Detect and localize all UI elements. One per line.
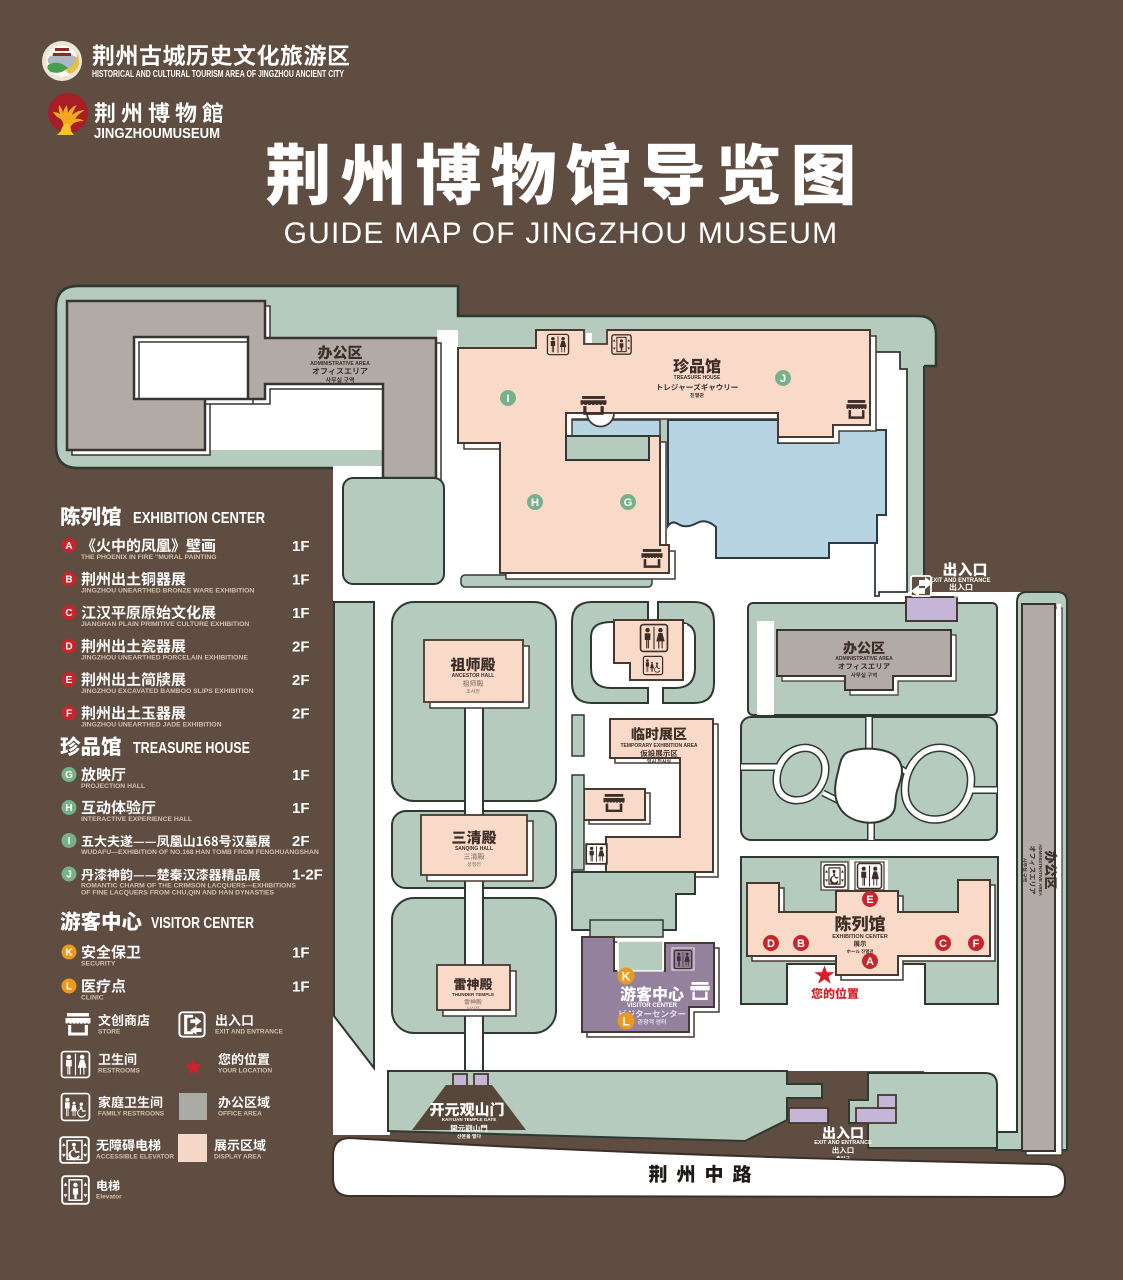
- svg-text:F: F: [973, 938, 980, 950]
- svg-text:H: H: [65, 803, 72, 814]
- svg-text:C: C: [65, 608, 72, 619]
- svg-text:K: K: [622, 969, 631, 983]
- svg-text:ADMINISTRATIVE AREA: ADMINISTRATIVE AREA: [310, 361, 370, 367]
- svg-text:I: I: [68, 836, 71, 847]
- svg-text:1F: 1F: [292, 979, 310, 996]
- svg-text:2F: 2F: [292, 672, 310, 689]
- svg-text:JINGZHOU UNEARTHED BRONZE WARE: JINGZHOU UNEARTHED BRONZE WARE EXHIBITIO…: [81, 588, 254, 595]
- svg-text:THE PHOENIX IN FIRE "MURAL PAI: THE PHOENIX IN FIRE "MURAL PAINTING: [81, 554, 217, 561]
- svg-text:JINGZHOU EXCAVATED BAMBOO SLIP: JINGZHOU EXCAVATED BAMBOO SLIPS EXHIBITI…: [81, 688, 254, 695]
- svg-text:EXHIBITION CENTER: EXHIBITION CENTER: [832, 934, 888, 940]
- svg-text:JINGZHOUMUSEUM: JINGZHOUMUSEUM: [94, 126, 220, 142]
- svg-text:RESTROOMS: RESTROOMS: [98, 1068, 141, 1075]
- svg-text:DISPLAY AREA: DISPLAY AREA: [214, 1154, 262, 1161]
- svg-text:ADMINISTRATIVE AREA: ADMINISTRATIVE AREA: [835, 656, 893, 662]
- svg-text:OF FINE LACQUERS FROM CHU,QIN: OF FINE LACQUERS FROM CHU,QIN AND HAN DY…: [81, 890, 275, 897]
- svg-text:1F: 1F: [292, 800, 310, 817]
- svg-text:G: G: [65, 770, 73, 781]
- svg-text:EXHIBITION CENTER: EXHIBITION CENTER: [133, 510, 265, 527]
- svg-text:SANQING HALL: SANQING HALL: [455, 846, 493, 852]
- svg-text:E: E: [66, 675, 73, 686]
- svg-text:D: D: [65, 642, 72, 653]
- svg-text:FAMILY RESTROONS: FAMILY RESTROONS: [98, 1111, 165, 1118]
- svg-text:PROJECTION HALL: PROJECTION HALL: [81, 783, 145, 790]
- svg-text:J: J: [66, 870, 72, 881]
- svg-text:ADMINISTRATIVE AREA: ADMINISTRATIVE AREA: [1038, 844, 1043, 897]
- svg-text:2F: 2F: [292, 706, 310, 723]
- svg-text:C: C: [939, 938, 947, 950]
- svg-text:A: A: [866, 956, 874, 968]
- svg-text:Elevator: Elevator: [96, 1194, 122, 1201]
- svg-text:SECURITY: SECURITY: [81, 961, 116, 968]
- svg-text:G: G: [624, 497, 633, 509]
- svg-text:1F: 1F: [292, 767, 310, 784]
- svg-text:JINGZHOU UNEARTHED JADE EXHIBI: JINGZHOU UNEARTHED JADE EXHIBITION: [81, 722, 222, 729]
- svg-text:1-2F: 1-2F: [292, 867, 323, 884]
- svg-text:2F: 2F: [292, 639, 310, 656]
- svg-text:ACCESSIBLE ELEVATOR: ACCESSIBLE ELEVATOR: [96, 1154, 174, 1161]
- svg-text:EXIT AND ENTRANCE: EXIT AND ENTRANCE: [814, 1140, 872, 1146]
- svg-text:K: K: [65, 948, 73, 959]
- svg-text:KAIYUAN TEMPLE GATE: KAIYUAN TEMPLE GATE: [442, 1117, 497, 1122]
- svg-text:2F: 2F: [292, 833, 310, 850]
- svg-text:1F: 1F: [292, 538, 310, 555]
- svg-text:CLINIC: CLINIC: [81, 995, 104, 1002]
- svg-text:I: I: [506, 393, 509, 405]
- svg-text:JIANGHAN PLAIN PRIMITIVE CULTU: JIANGHAN PLAIN PRIMITIVE CULTURE EXHIBIT…: [81, 621, 249, 628]
- svg-text:HISTORICAL AND CULTURAL TOURIS: HISTORICAL AND CULTURAL TOURISM AREA OF …: [92, 69, 344, 80]
- svg-text:VISITOR CENTER: VISITOR CENTER: [151, 915, 254, 932]
- svg-text:L: L: [622, 1014, 629, 1028]
- svg-text:JINGZHOU UNEARTHED PORCELAIN E: JINGZHOU UNEARTHED PORCELAIN EXHIBITIONE: [81, 655, 248, 662]
- svg-text:ROMANTIC CHARM OF THE CRIMSON: ROMANTIC CHARM OF THE CRIMSON LACQUERS—E…: [81, 883, 296, 890]
- svg-text:F: F: [66, 709, 72, 720]
- svg-text:D: D: [767, 938, 775, 950]
- svg-text:L: L: [66, 982, 72, 993]
- svg-text:EXIT AND ENTRANCE: EXIT AND ENTRANCE: [930, 578, 991, 584]
- svg-text:B: B: [797, 938, 805, 950]
- svg-text:1F: 1F: [292, 572, 310, 589]
- svg-text:TEMPORARY EXHIBITION AREA: TEMPORARY EXHIBITION AREA: [620, 743, 697, 749]
- svg-text:1F: 1F: [292, 945, 310, 962]
- svg-text:THUNDER TEMPLE: THUNDER TEMPLE: [452, 992, 494, 997]
- svg-text:WUDAFU—EXHIBITION OF NO.168 HA: WUDAFU—EXHIBITION OF NO.168 HAN TOMB FRO…: [81, 849, 319, 856]
- svg-text:TREASURE HOUSE: TREASURE HOUSE: [674, 375, 721, 381]
- svg-text:GUIDE MAP OF JINGZHOU MUSEUM: GUIDE MAP OF JINGZHOU MUSEUM: [284, 217, 839, 250]
- svg-text:B: B: [65, 575, 72, 586]
- svg-text:INTERACTIVE EXPERIENCE HALL: INTERACTIVE EXPERIENCE HALL: [81, 816, 192, 823]
- svg-text:VISITOR CENTER: VISITOR CENTER: [627, 1003, 678, 1009]
- svg-text:J: J: [780, 373, 786, 385]
- svg-text:YOUR LOCATION: YOUR LOCATION: [218, 1068, 272, 1075]
- svg-text:STORE: STORE: [98, 1029, 121, 1036]
- svg-text:TREASURE HOUSE: TREASURE HOUSE: [133, 740, 250, 757]
- svg-text:ANCESTOR HALL: ANCESTOR HALL: [452, 673, 495, 679]
- svg-text:A: A: [65, 541, 72, 552]
- svg-text:H: H: [531, 497, 539, 509]
- svg-text:1F: 1F: [292, 605, 310, 622]
- svg-text:OFFICE AREA: OFFICE AREA: [218, 1111, 262, 1118]
- svg-text:E: E: [866, 894, 873, 906]
- svg-text:EXIT AND ENTRANCE: EXIT AND ENTRANCE: [215, 1029, 284, 1036]
